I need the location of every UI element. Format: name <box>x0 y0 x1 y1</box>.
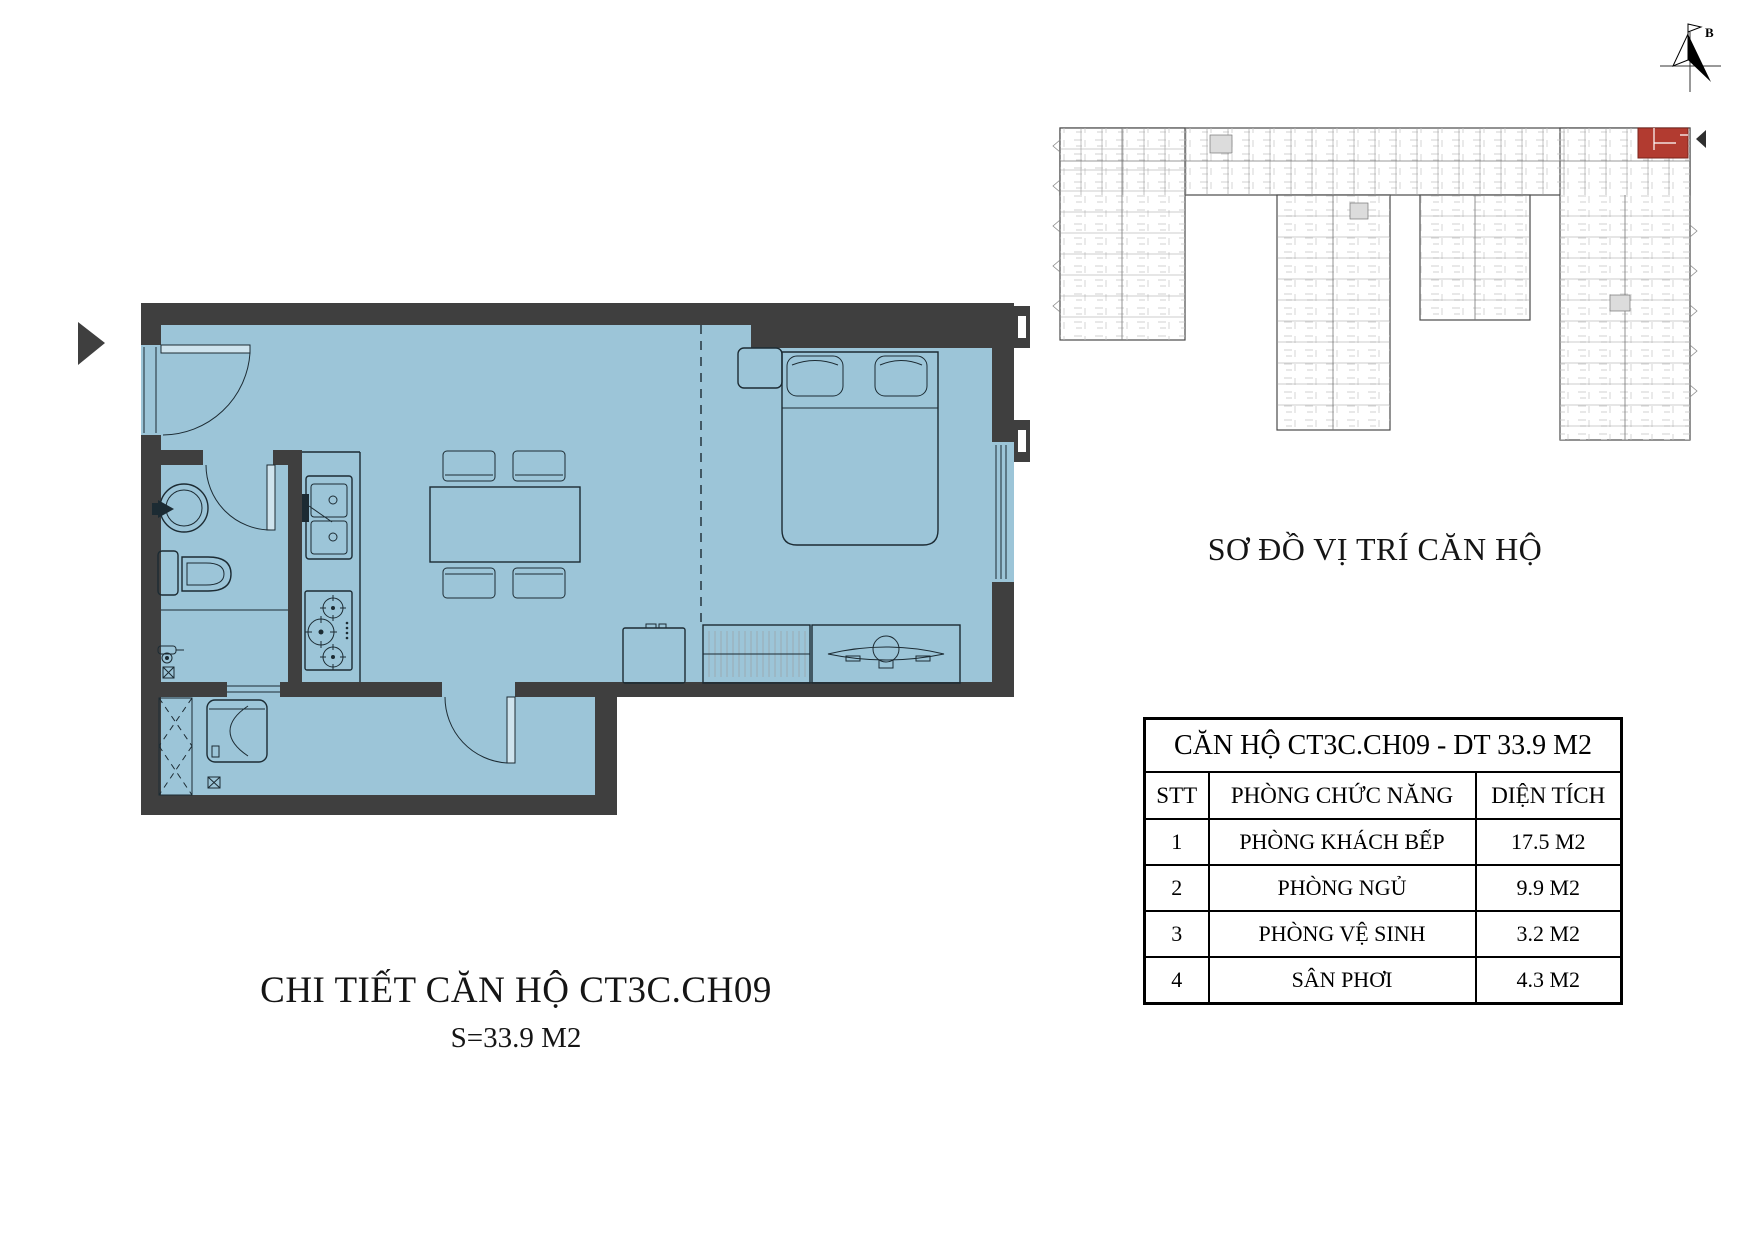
cell-room: PHÒNG VỆ SINH <box>1209 911 1476 957</box>
apartment-info-table: CĂN HỘ CT3C.CH09 - DT 33.9 M2 STT PHÒNG … <box>1143 717 1623 1005</box>
north-label: B <box>1705 25 1714 40</box>
apartment-floor-plan <box>70 290 1040 830</box>
table-row: 4 SÂN PHƠI 4.3 M2 <box>1145 957 1622 1004</box>
cell-stt: 3 <box>1145 911 1209 957</box>
highlighted-unit <box>1638 128 1688 158</box>
cell-stt: 1 <box>1145 819 1209 865</box>
table-row: 1 PHÒNG KHÁCH BẾP 17.5 M2 <box>1145 819 1622 865</box>
floor-area <box>141 303 1014 795</box>
location-diagram-title: SƠ ĐỒ VỊ TRÍ CĂN HỘ <box>1115 531 1635 568</box>
cell-room: SÂN PHƠI <box>1209 957 1476 1004</box>
floorplan-sheet: { "theme": { "floor": "#9cc5d8", "wall":… <box>0 0 1755 1240</box>
entry-door <box>161 345 250 353</box>
table-row: 2 PHÒNG NGỦ 9.9 M2 <box>1145 865 1622 911</box>
table-row: 3 PHÒNG VỆ SINH 3.2 M2 <box>1145 911 1622 957</box>
building-footprint <box>1053 128 1697 440</box>
cell-area: 3.2 M2 <box>1476 911 1622 957</box>
apartment-info-table-wrap: CĂN HỘ CT3C.CH09 - DT 33.9 M2 STT PHÒNG … <box>1143 717 1623 1005</box>
table-title: CĂN HỘ CT3C.CH09 - DT 33.9 M2 <box>1145 719 1622 773</box>
bathroom-door <box>267 465 275 530</box>
detail-plan-title: CHI TIẾT CĂN HỘ CT3C.CH09 <box>166 969 866 1012</box>
cell-stt: 4 <box>1145 957 1209 1004</box>
cell-area: 4.3 M2 <box>1476 957 1622 1004</box>
detail-plan-area-label: S=33.9 M2 <box>166 1022 866 1055</box>
entry-arrow-icon <box>78 322 105 365</box>
table-header-row: STT PHÒNG CHỨC NĂNG DIỆN TÍCH <box>1145 772 1622 819</box>
north-compass-icon: B <box>1655 20 1725 98</box>
cell-area: 17.5 M2 <box>1476 819 1622 865</box>
col-header-stt: STT <box>1145 772 1209 819</box>
cell-room: PHÒNG KHÁCH BẾP <box>1209 819 1476 865</box>
cell-room: PHÒNG NGỦ <box>1209 865 1476 911</box>
cell-stt: 2 <box>1145 865 1209 911</box>
col-header-area: DIỆN TÍCH <box>1476 772 1622 819</box>
building-location-diagram <box>1050 95 1715 450</box>
unit-pointer-icon <box>1696 130 1706 148</box>
col-header-room: PHÒNG CHỨC NĂNG <box>1209 772 1476 819</box>
cell-area: 9.9 M2 <box>1476 865 1622 911</box>
laundry-door <box>507 697 515 763</box>
